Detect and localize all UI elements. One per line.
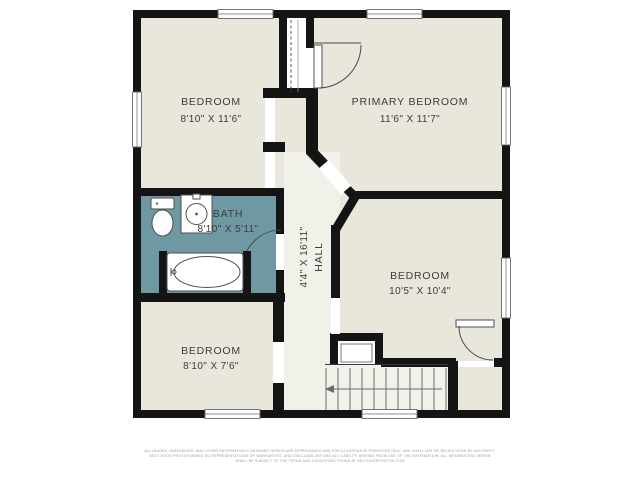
primary-bedroom-bottom-wall — [349, 191, 502, 199]
disclaimer-text: ALL IMAGES, DIMENSIONS, AND OTHER INFORM… — [0, 449, 640, 464]
room-label-bedroom-right: BEDROOM 10'5" X 10'4" — [389, 269, 451, 299]
window — [133, 92, 142, 147]
toilet-icon — [151, 198, 174, 236]
room-name: BEDROOM — [389, 269, 451, 284]
window — [205, 410, 260, 419]
window — [502, 258, 511, 318]
disclaimer-line-3: SHALL BE SUBJECT TO THE TERMS AND CONDIT… — [0, 459, 640, 464]
landing-door-jamb — [494, 358, 502, 367]
window — [362, 410, 417, 419]
bedroom-right-bottom-wall-right — [381, 358, 456, 367]
closet-left-wall — [279, 18, 287, 98]
window — [367, 10, 422, 19]
stair-right-wall — [448, 361, 458, 410]
bath-bottom-wall — [141, 293, 285, 302]
closet-right-wall-upper — [306, 18, 314, 48]
room-name: BEDROOM — [181, 94, 242, 111]
niche-shelf — [341, 344, 372, 362]
bedroom-tl-door-opening-2 — [265, 152, 275, 188]
room-dimensions: 4'4" X 16'11" — [297, 227, 312, 288]
bedroom-bl-door-opening — [273, 342, 284, 383]
primary-door-leaf — [314, 45, 322, 88]
bath-door-opening — [276, 234, 284, 270]
stair-landing-floor — [458, 367, 502, 410]
room-dimensions: 10'5" X 10'4" — [389, 284, 451, 299]
room-dimensions: 8'10" X 11'6" — [181, 111, 242, 128]
hall-right-wall-upper — [331, 225, 340, 298]
room-dimensions: 11'6" X 11'7" — [352, 111, 469, 128]
room-name: PRIMARY BEDROOM — [352, 94, 469, 111]
bedroom-door-stub — [263, 142, 285, 152]
closet-floor — [287, 18, 306, 94]
room-dimensions: 8'10" X 5'11" — [198, 222, 259, 237]
stair-floor — [284, 361, 458, 410]
window — [218, 10, 273, 19]
closet-right-wall-lower — [306, 88, 318, 154]
room-label-bath: BATH 8'10" X 5'11" — [198, 207, 259, 237]
floor-plan-page: BEDROOM 8'10" X 11'6" PRIMARY BEDROOM 11… — [0, 0, 640, 480]
room-label-primary-bedroom: PRIMARY BEDROOM 11'6" X 11'7" — [352, 94, 469, 128]
room-name: HALL — [312, 227, 327, 288]
bathtub-icon — [159, 251, 251, 293]
bedroom-tl-door-opening — [265, 98, 275, 142]
bath-right-wall-upper — [276, 196, 284, 234]
bedroom-right-door-opening — [331, 298, 340, 334]
room-dimensions: 8'10" X 7'6" — [181, 359, 241, 374]
room-label-bedroom-bottom-left: BEDROOM 8'10" X 7'6" — [181, 344, 241, 374]
room-name: BEDROOM — [181, 344, 241, 359]
window — [502, 87, 511, 145]
landing-door-leaf — [456, 320, 494, 327]
bedroom-bl-right-wall-upper — [273, 302, 284, 342]
room-label-hall: 4'4" X 16'11" HALL — [297, 227, 327, 288]
room-name: BATH — [198, 207, 259, 222]
bedroom-bl-right-wall-lower — [273, 383, 284, 410]
room-label-bedroom-top-left: BEDROOM 8'10" X 11'6" — [181, 94, 242, 128]
